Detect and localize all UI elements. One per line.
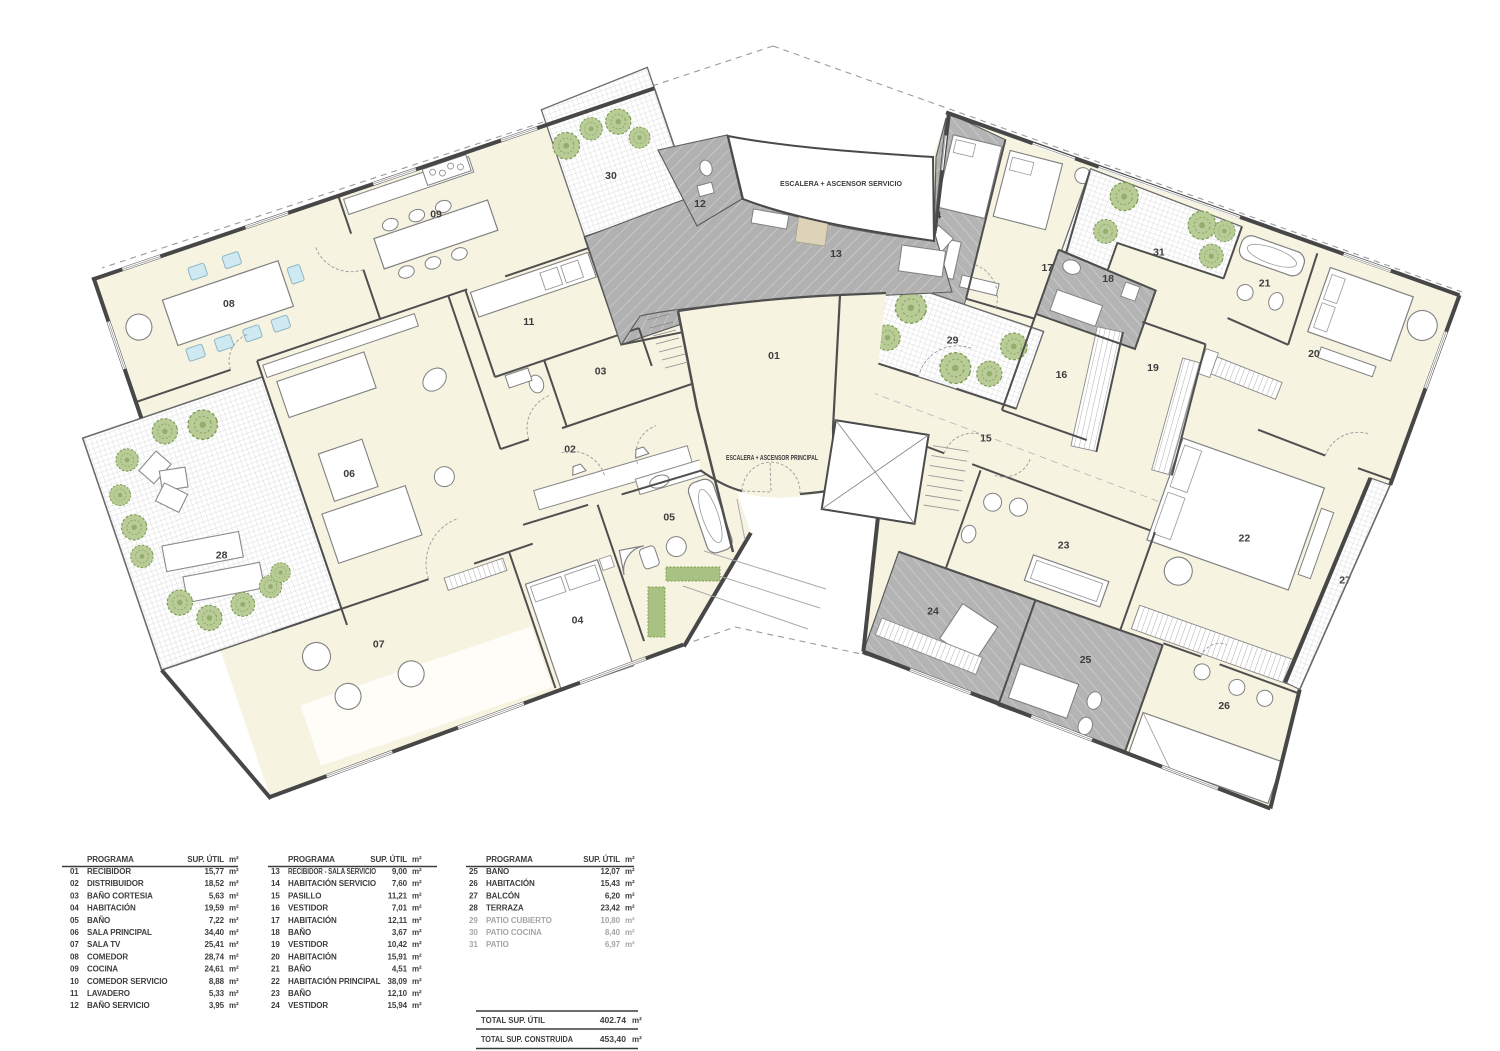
svg-text:38,09: 38,09 xyxy=(387,977,407,986)
svg-text:21: 21 xyxy=(1259,277,1271,289)
svg-text:02: 02 xyxy=(70,879,79,888)
svg-text:m²: m² xyxy=(625,928,635,937)
svg-text:m²: m² xyxy=(229,952,239,961)
svg-text:HABITACIÓN SERVICIO: HABITACIÓN SERVICIO xyxy=(288,879,376,888)
svg-text:01: 01 xyxy=(70,867,79,876)
svg-text:19,59: 19,59 xyxy=(204,904,224,913)
svg-text:BAÑO: BAÑO xyxy=(288,965,311,974)
svg-text:m²: m² xyxy=(229,904,239,913)
svg-text:3,67: 3,67 xyxy=(392,928,408,937)
svg-text:m²: m² xyxy=(625,879,635,888)
svg-text:m²: m² xyxy=(412,916,422,925)
svg-text:05: 05 xyxy=(70,916,79,925)
svg-text:12: 12 xyxy=(70,1001,79,1010)
svg-text:VESTIDOR: VESTIDOR xyxy=(288,940,328,949)
svg-text:HABITACIÓN PRINCIPAL: HABITACIÓN PRINCIPAL xyxy=(288,977,381,986)
svg-text:20: 20 xyxy=(1308,348,1320,360)
svg-text:HABITACIÓN: HABITACIÓN xyxy=(288,952,337,961)
svg-text:19: 19 xyxy=(271,940,280,949)
svg-text:9,00: 9,00 xyxy=(392,867,408,876)
svg-text:TOTAL SUP. ÚTIL: TOTAL SUP. ÚTIL xyxy=(481,1014,545,1025)
svg-text:10,80: 10,80 xyxy=(600,916,620,925)
svg-text:BAÑO: BAÑO xyxy=(288,928,311,937)
svg-text:13: 13 xyxy=(830,248,842,260)
svg-text:12,10: 12,10 xyxy=(387,989,407,998)
svg-text:m²: m² xyxy=(229,989,239,998)
svg-text:11: 11 xyxy=(523,316,534,328)
svg-text:15,94: 15,94 xyxy=(387,1001,407,1010)
svg-text:03: 03 xyxy=(595,366,607,378)
svg-text:24: 24 xyxy=(271,1001,280,1010)
svg-text:m²: m² xyxy=(412,989,422,998)
svg-text:22: 22 xyxy=(1239,532,1251,544)
svg-text:8,40: 8,40 xyxy=(605,928,621,937)
svg-text:28,74: 28,74 xyxy=(204,952,224,961)
svg-text:m²: m² xyxy=(229,1001,239,1010)
svg-text:m²: m² xyxy=(412,867,422,876)
svg-text:m²: m² xyxy=(229,867,239,876)
svg-text:30: 30 xyxy=(605,170,617,182)
svg-text:m²: m² xyxy=(632,1016,642,1025)
svg-text:12,07: 12,07 xyxy=(600,867,620,876)
svg-text:15: 15 xyxy=(271,891,280,900)
svg-text:4,51: 4,51 xyxy=(392,965,408,974)
svg-text:21: 21 xyxy=(271,965,280,974)
svg-text:m²: m² xyxy=(412,940,422,949)
svg-text:m²: m² xyxy=(625,904,635,913)
svg-text:28: 28 xyxy=(216,550,228,562)
svg-text:07: 07 xyxy=(373,639,385,651)
svg-text:ESCALERA + ASCENSOR PRINCIPAL: ESCALERA + ASCENSOR PRINCIPAL xyxy=(726,453,818,462)
svg-text:m²: m² xyxy=(229,879,239,888)
svg-text:15,91: 15,91 xyxy=(387,952,407,961)
svg-text:m²: m² xyxy=(412,952,422,961)
svg-text:5,33: 5,33 xyxy=(209,989,225,998)
svg-text:24: 24 xyxy=(927,606,939,618)
svg-text:HABITACIÓN: HABITACIÓN xyxy=(486,879,535,888)
svg-text:BAÑO SERVICIO: BAÑO SERVICIO xyxy=(87,1001,150,1010)
svg-text:PATIO CUBIERTO: PATIO CUBIERTO xyxy=(486,916,552,925)
svg-text:SUP. ÚTIL: SUP. ÚTIL xyxy=(187,855,224,864)
svg-text:m²: m² xyxy=(412,977,422,986)
svg-text:PASILLO: PASILLO xyxy=(288,891,321,900)
svg-text:VESTIDOR: VESTIDOR xyxy=(288,904,328,913)
svg-text:19: 19 xyxy=(1147,362,1159,374)
svg-text:15,77: 15,77 xyxy=(204,867,224,876)
svg-text:27: 27 xyxy=(469,891,478,900)
svg-text:15: 15 xyxy=(980,432,992,444)
svg-text:18: 18 xyxy=(271,928,280,937)
svg-text:COMEDOR SERVICIO: COMEDOR SERVICIO xyxy=(87,977,168,986)
svg-text:15,43: 15,43 xyxy=(600,879,620,888)
svg-text:6,20: 6,20 xyxy=(605,891,621,900)
svg-text:20: 20 xyxy=(271,952,280,961)
svg-text:26: 26 xyxy=(1218,700,1230,712)
svg-text:DISTRIBUIDOR: DISTRIBUIDOR xyxy=(87,879,144,888)
svg-text:m²: m² xyxy=(229,916,239,925)
svg-text:m²: m² xyxy=(625,867,635,876)
svg-text:25,41: 25,41 xyxy=(204,940,224,949)
svg-text:m²: m² xyxy=(625,891,635,900)
svg-text:COCINA: COCINA xyxy=(87,965,118,974)
svg-text:m²: m² xyxy=(632,1035,642,1044)
svg-text:7,22: 7,22 xyxy=(209,916,225,925)
svg-text:24,61: 24,61 xyxy=(204,965,224,974)
svg-text:8,88: 8,88 xyxy=(209,977,225,986)
svg-text:25: 25 xyxy=(1080,654,1092,666)
svg-text:07: 07 xyxy=(70,940,79,949)
svg-text:m²: m² xyxy=(229,928,239,937)
svg-text:06: 06 xyxy=(343,468,355,480)
svg-text:m²: m² xyxy=(412,879,422,888)
svg-text:402.74: 402.74 xyxy=(600,1015,627,1025)
svg-text:12,11: 12,11 xyxy=(388,916,408,925)
svg-text:453,40: 453,40 xyxy=(600,1034,627,1044)
svg-text:m²: m² xyxy=(412,928,422,937)
svg-text:RECIBIDOR: RECIBIDOR xyxy=(87,867,131,876)
svg-text:08: 08 xyxy=(70,952,79,961)
svg-text:SUP. ÚTIL: SUP. ÚTIL xyxy=(370,855,407,864)
svg-text:7,60: 7,60 xyxy=(392,879,408,888)
svg-text:34,40: 34,40 xyxy=(204,928,224,937)
svg-text:03: 03 xyxy=(70,891,79,900)
svg-text:7,01: 7,01 xyxy=(392,904,408,913)
svg-text:m²: m² xyxy=(229,977,239,986)
svg-text:PROGRAMA: PROGRAMA xyxy=(87,855,134,864)
svg-text:TOTAL SUP. CONSTRUIDA: TOTAL SUP. CONSTRUIDA xyxy=(481,1034,573,1044)
svg-text:02: 02 xyxy=(564,444,576,456)
svg-text:SALA PRINCIPAL: SALA PRINCIPAL xyxy=(87,928,152,937)
svg-text:05: 05 xyxy=(663,511,675,523)
svg-text:SALA TV: SALA TV xyxy=(87,940,121,949)
svg-text:11: 11 xyxy=(70,989,79,998)
svg-text:26: 26 xyxy=(469,879,478,888)
svg-text:30: 30 xyxy=(469,928,478,937)
svg-text:HABITACIÓN: HABITACIÓN xyxy=(288,916,337,925)
svg-text:BALCÓN: BALCÓN xyxy=(486,891,520,900)
svg-text:m²: m² xyxy=(229,891,239,900)
svg-text:18,52: 18,52 xyxy=(204,879,224,888)
svg-text:PROGRAMA: PROGRAMA xyxy=(288,855,335,864)
svg-text:m²: m² xyxy=(412,891,422,900)
svg-text:04: 04 xyxy=(70,904,79,913)
svg-text:SUP. ÚTIL: SUP. ÚTIL xyxy=(583,855,620,864)
svg-text:m²: m² xyxy=(412,1001,422,1010)
svg-text:18: 18 xyxy=(1102,273,1114,285)
svg-text:31: 31 xyxy=(469,940,478,949)
svg-text:VESTIDOR: VESTIDOR xyxy=(288,1001,328,1010)
svg-text:COMEDOR: COMEDOR xyxy=(87,952,128,961)
svg-text:PATIO: PATIO xyxy=(486,940,509,949)
svg-text:04: 04 xyxy=(572,614,584,626)
svg-text:5,63: 5,63 xyxy=(209,891,225,900)
svg-text:23: 23 xyxy=(271,989,280,998)
svg-text:ESCALERA + ASCENSOR SERVICIO: ESCALERA + ASCENSOR SERVICIO xyxy=(780,179,902,188)
svg-text:BAÑO: BAÑO xyxy=(486,867,509,876)
svg-text:10,42: 10,42 xyxy=(387,940,407,949)
svg-text:BAÑO CORTESIA: BAÑO CORTESIA xyxy=(87,891,153,900)
svg-text:LAVADERO: LAVADERO xyxy=(87,989,130,998)
svg-text:3,95: 3,95 xyxy=(209,1001,225,1010)
svg-text:m²: m² xyxy=(625,855,635,864)
svg-text:HABITACIÓN: HABITACIÓN xyxy=(87,904,136,913)
svg-text:PROGRAMA: PROGRAMA xyxy=(486,855,533,864)
svg-text:m²: m² xyxy=(229,855,239,864)
svg-text:09: 09 xyxy=(70,965,79,974)
svg-text:25: 25 xyxy=(469,867,478,876)
svg-text:13: 13 xyxy=(271,867,280,876)
svg-text:23,42: 23,42 xyxy=(600,904,620,913)
svg-text:29: 29 xyxy=(469,916,478,925)
svg-text:09: 09 xyxy=(430,208,442,220)
svg-text:08: 08 xyxy=(223,298,235,310)
svg-text:6,97: 6,97 xyxy=(605,940,621,949)
svg-text:01: 01 xyxy=(768,350,780,362)
svg-text:m²: m² xyxy=(412,904,422,913)
svg-text:TERRAZA: TERRAZA xyxy=(486,904,524,913)
svg-text:16: 16 xyxy=(1056,369,1068,381)
svg-text:29: 29 xyxy=(947,335,959,347)
svg-text:m²: m² xyxy=(412,855,422,864)
svg-text:17: 17 xyxy=(271,916,280,925)
svg-text:28: 28 xyxy=(469,904,478,913)
svg-text:m²: m² xyxy=(625,916,635,925)
svg-text:m²: m² xyxy=(229,965,239,974)
svg-text:m²: m² xyxy=(412,965,422,974)
svg-text:RECIBIDOR - SALA SERVICIO: RECIBIDOR - SALA SERVICIO xyxy=(288,867,376,876)
svg-text:14: 14 xyxy=(271,879,280,888)
svg-text:16: 16 xyxy=(271,904,280,913)
svg-text:m²: m² xyxy=(625,940,635,949)
svg-text:10: 10 xyxy=(70,977,79,986)
svg-text:22: 22 xyxy=(271,977,280,986)
svg-text:06: 06 xyxy=(70,928,79,937)
svg-text:23: 23 xyxy=(1058,539,1070,551)
svg-text:PATIO COCINA: PATIO COCINA xyxy=(486,928,542,937)
svg-text:12: 12 xyxy=(694,198,706,210)
svg-text:m²: m² xyxy=(229,940,239,949)
svg-text:BAÑO: BAÑO xyxy=(288,989,311,998)
svg-text:BAÑO: BAÑO xyxy=(87,916,110,925)
svg-text:11,21: 11,21 xyxy=(388,891,408,900)
